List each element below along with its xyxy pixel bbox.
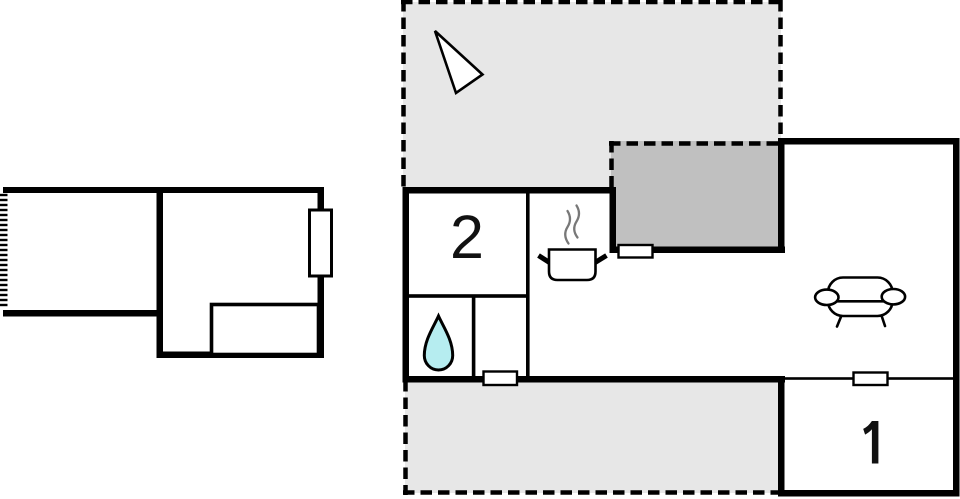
svg-text:2: 2 [450, 203, 484, 271]
